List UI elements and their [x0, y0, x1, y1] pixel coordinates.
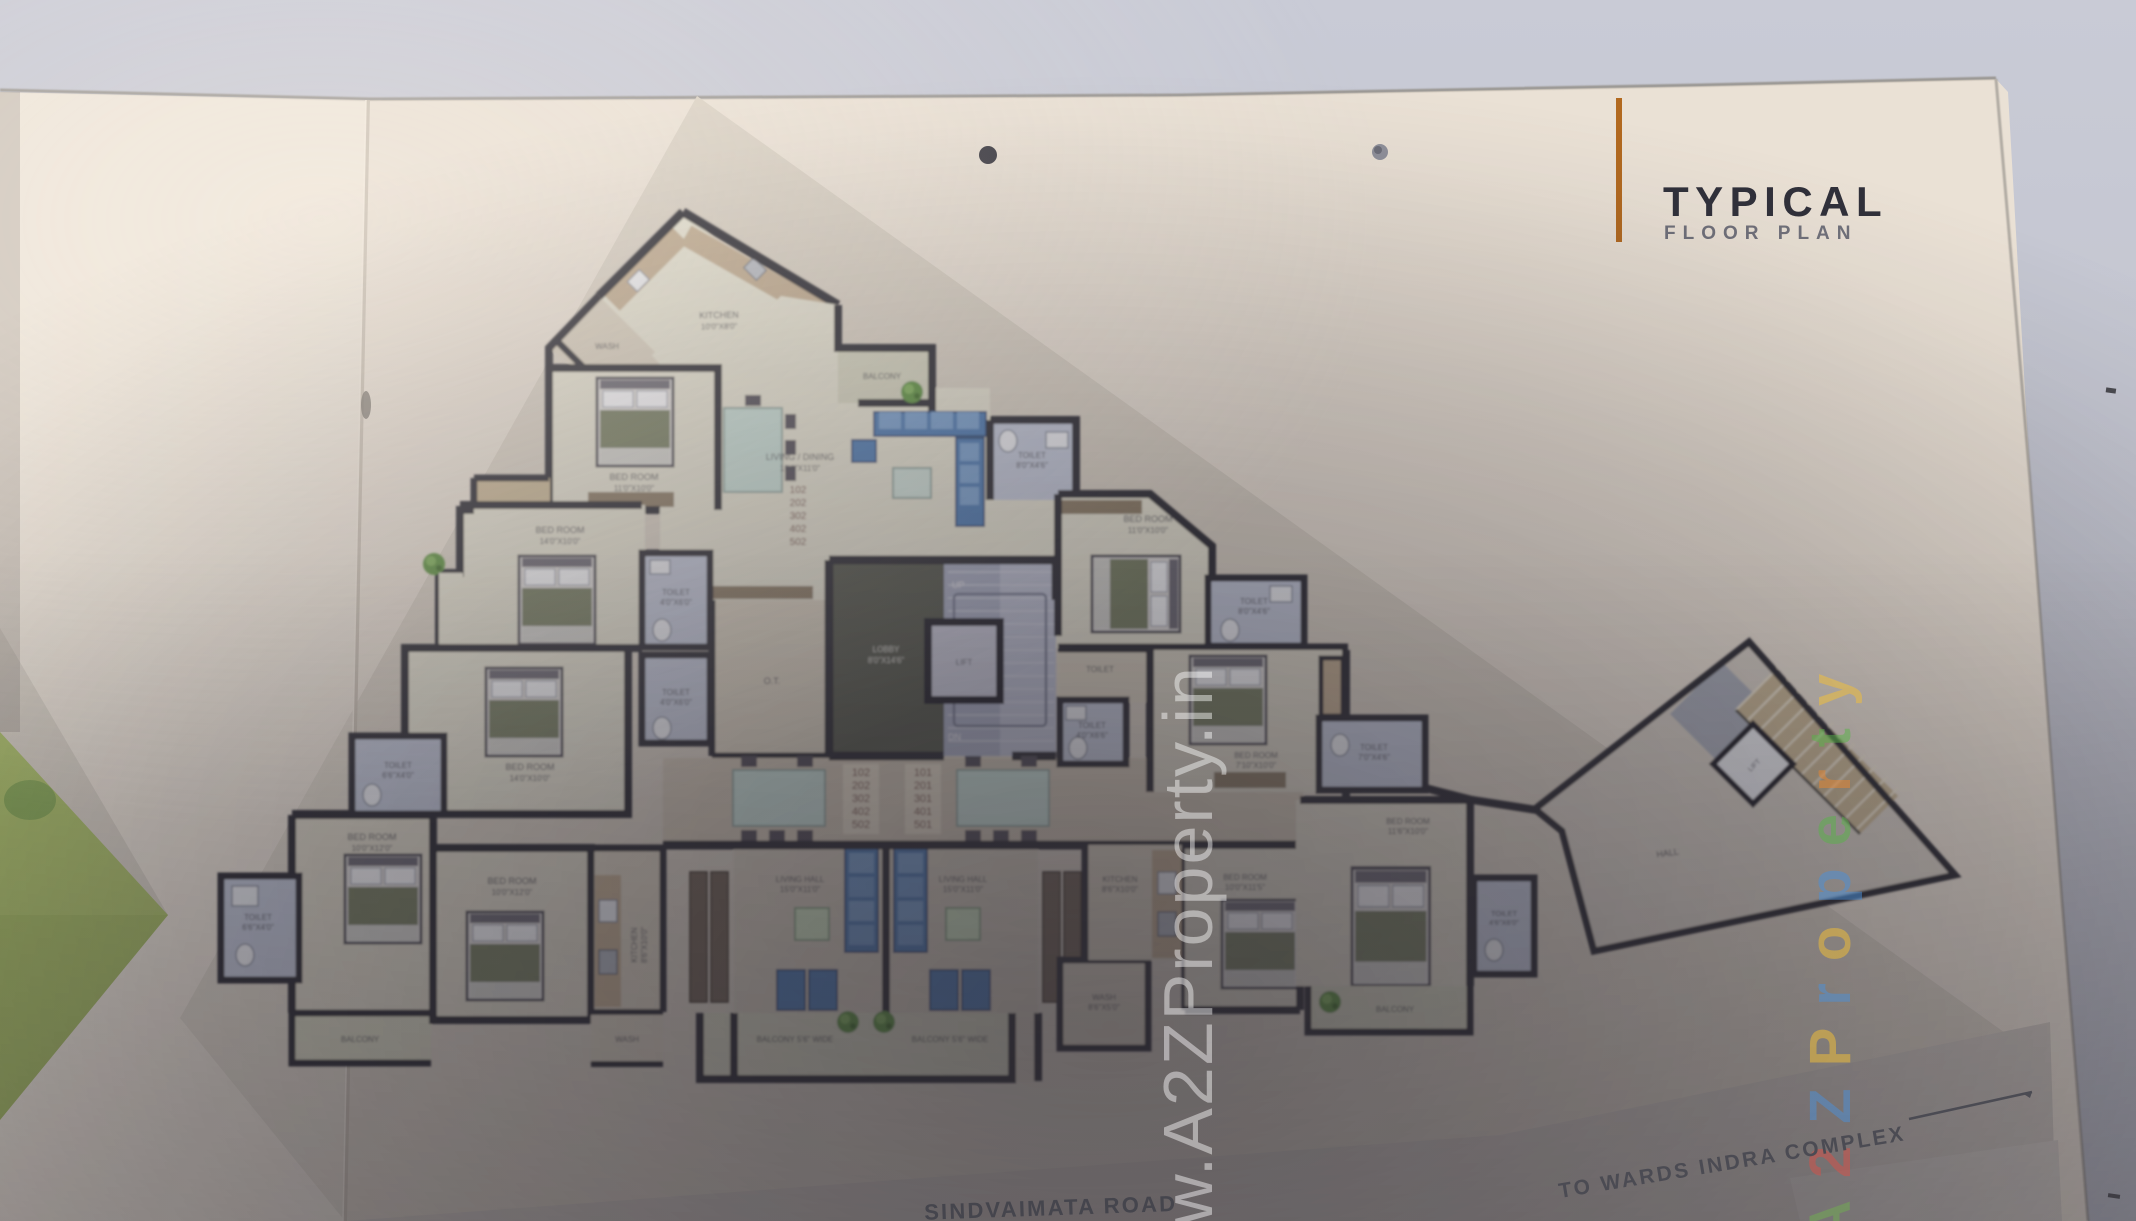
svg-text:www.A2ZProperty.in: www.A2ZProperty.in	[1149, 665, 1227, 1221]
